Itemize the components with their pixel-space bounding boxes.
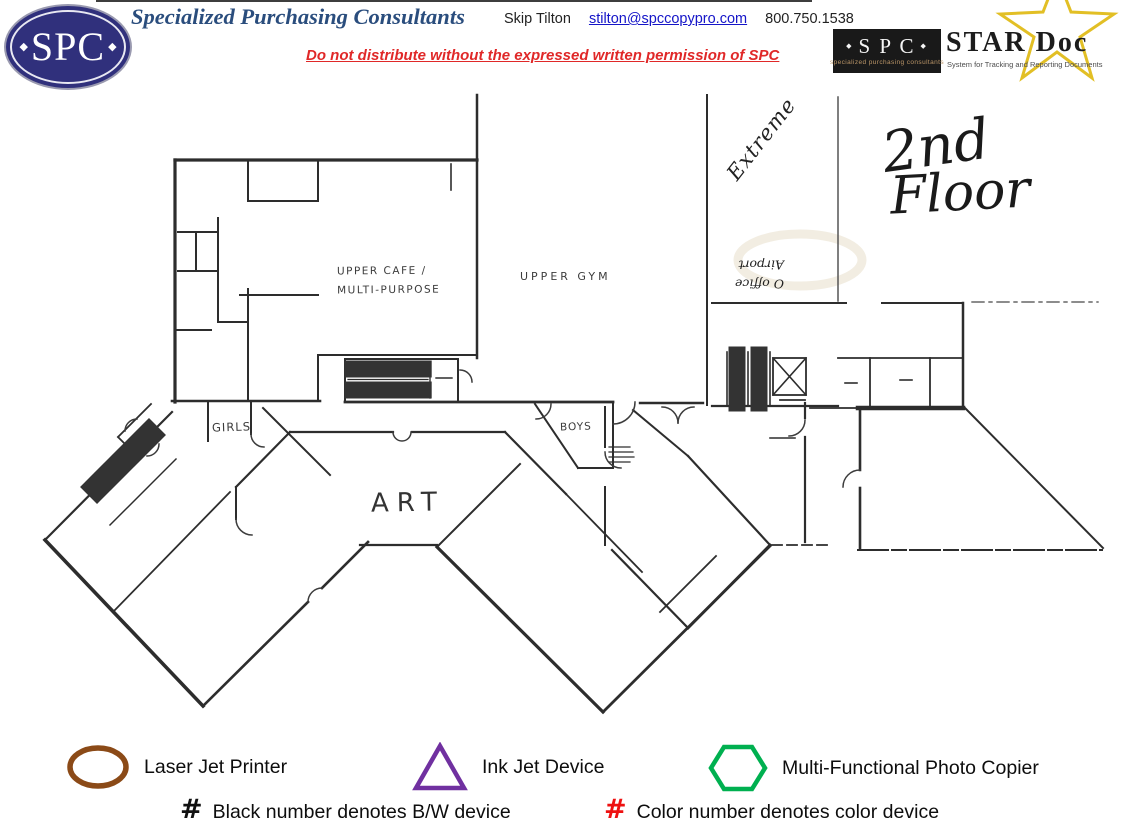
stardoc-spc-box: ◆ S P C ◆ specialized purchasing consult…	[833, 29, 941, 73]
legend-label-laser-jet: Laser Jet Printer	[144, 756, 287, 779]
legend-note-bw: # Black number denotes B/W device	[180, 796, 511, 824]
legend-item-laser-jet: Laser Jet Printer	[66, 744, 287, 790]
legend-label-ink-jet: Ink Jet Device	[482, 756, 604, 779]
room-label-art: ART	[371, 487, 445, 518]
stardoc-subtitle: System for Tracking and Reporting Docume…	[947, 60, 1103, 69]
room-label-upper-gym: UPPER GYM	[520, 270, 611, 283]
room-label-boys: BOYS	[560, 420, 592, 433]
room-label-girls: GIRLS	[212, 419, 251, 434]
stardoc-box-subtext: specialized purchasing consultants	[830, 59, 944, 66]
page: ◆ SPC ◆ Specialized Purchasing Consultan…	[0, 0, 1140, 828]
stardoc-box-text: S P C	[858, 36, 915, 57]
floor-title: 2nd Floor	[872, 118, 1030, 217]
photo-copier-hexagon-icon	[708, 744, 768, 792]
legend-label-photo-copier: Multi-Functional Photo Copier	[782, 757, 1039, 780]
stair-hatching	[96, 355, 759, 488]
legend-item-ink-jet: Ink Jet Device	[412, 742, 604, 792]
legend-note-color-text: Color number denotes color device	[637, 801, 939, 824]
laser-jet-ellipse-icon	[66, 744, 130, 790]
legend-item-photo-copier: Multi-Functional Photo Copier	[708, 744, 1039, 792]
diamond-icon: ◆	[921, 43, 928, 50]
legend-note-color: # Color number denotes color device	[604, 796, 939, 824]
room-label-upper-cafe: UPPER CAFE / MULTI-PURPOSE	[337, 262, 440, 301]
legend-note-bw-text: Black number denotes B/W device	[213, 801, 511, 824]
red-hash-icon: #	[604, 796, 627, 823]
room-label-airport-note: O officeAirport	[735, 255, 784, 293]
stardoc-title: STAR Doc	[946, 27, 1088, 59]
ink-jet-triangle-icon	[412, 742, 468, 792]
interior-walls	[175, 162, 963, 548]
black-hash-icon: #	[180, 796, 203, 823]
diamond-icon: ◆	[846, 43, 853, 50]
floor-title-line2: Floor	[889, 166, 1031, 221]
wing-walls	[45, 403, 770, 712]
